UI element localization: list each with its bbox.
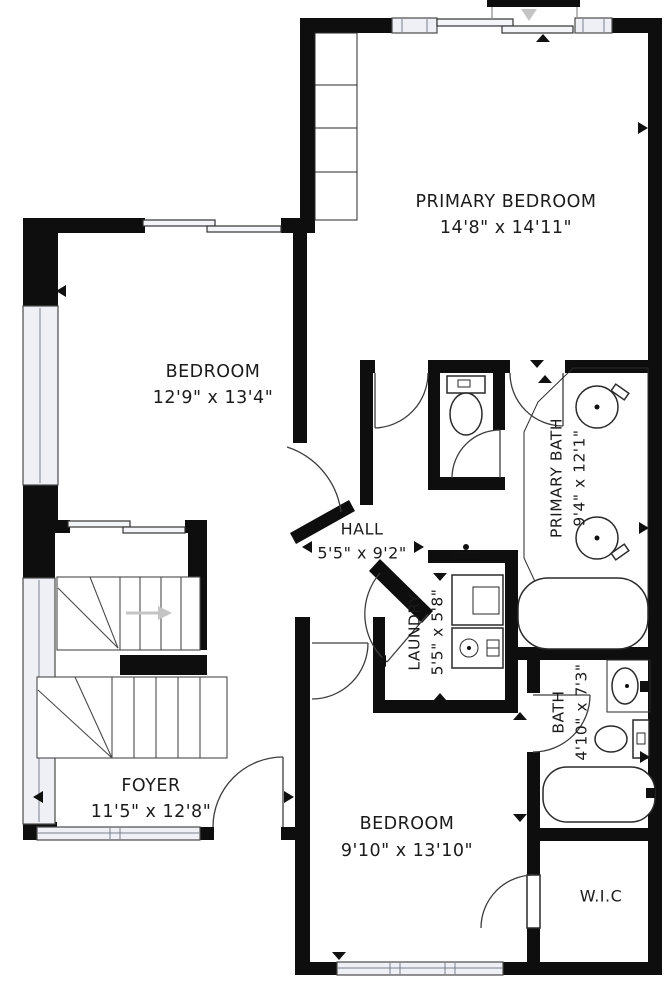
wall-segment [360,360,375,373]
room-label-hall: HALL [341,520,384,539]
room-label-primary-bath: PRIMARY BATH [548,418,566,538]
faucet-icon [640,681,648,692]
door-water-closet [452,430,500,478]
closet-shelves [315,33,357,220]
room-label-bath: BATH [550,690,568,733]
wall-segment [503,962,662,975]
tub-faucet-icon [646,788,655,798]
wall-segment [428,373,440,490]
washer-icon [452,628,503,668]
wall-segment [281,218,315,233]
sliding-glass-door [437,19,573,33]
floor-plan: PRIMARY BEDROOM 14'8" x 14'11" BEDROOM 1… [0,0,672,1000]
toilet-icon [447,376,485,435]
wall-segment [527,752,540,828]
room-label-wic: W.I.C [580,887,623,906]
room-dims-bedroom-bottom: 9'10" x 13'10" [341,841,473,861]
wall-segment [293,233,307,443]
door-foyer-entry [213,757,283,827]
room-dims-bedroom-left: 12'9" x 13'4" [153,388,274,408]
closet-sliding-doors [68,521,185,533]
wall-segment [23,525,55,580]
wall-segment [565,360,662,373]
room-dims-laundry: 5'5" x 5'8" [429,589,447,676]
room-label-primary-bedroom: PRIMARY BEDROOM [415,192,596,212]
window [575,18,612,33]
bathtub-icon [543,767,655,822]
wall-segment [295,962,337,975]
wall-segment [493,373,505,430]
stair-lower-run [37,677,227,758]
utility-sink-icon [452,575,503,625]
floor-plan-drawing: PRIMARY BEDROOM 14'8" x 14'11" BEDROOM 1… [0,0,672,1000]
wall-segment [300,18,315,233]
wall-segment [360,373,373,505]
wall-segment [527,660,540,693]
wall-segment [23,218,58,308]
door-wic [481,875,540,928]
wall-segment [505,550,518,713]
entry-wall-above [487,0,580,7]
wall-segment [428,360,510,373]
door-bedroom-bottom [312,643,368,699]
bathtub-icon [518,578,648,649]
room-dims-bath: 4'10" x 7'3" [573,663,591,760]
wall-segment [373,700,517,713]
wall-segment [120,655,207,675]
wall-segment [527,928,540,975]
door-primary-bedroom [375,373,428,428]
room-dims-primary-bedroom: 14'8" x 14'11" [440,218,572,238]
door-bedroom-left [287,447,341,512]
down-arrow-icon [521,9,537,21]
wall-segment [185,520,207,533]
room-label-foyer: FOYER [121,776,180,796]
wall-segment [23,520,70,533]
room-label-laundry: LAUNDRY [406,593,424,670]
sliding-window [143,220,281,232]
room-dims-hall: 5'5" x 9'2" [317,544,406,563]
room-label-bedroom-bottom: BEDROOM [360,814,455,834]
wall-segment [200,827,214,840]
wall-segment [295,617,310,975]
room-dims-primary-bath: 9'4" x 12'1" [571,429,589,526]
wall-segment [428,477,505,490]
window [392,18,437,33]
room-label-bedroom-left: BEDROOM [166,362,261,382]
wall-segment [23,483,58,525]
wall-segment [527,828,662,841]
bath-vanity [607,660,650,712]
room-dims-foyer: 11'5" x 12'8" [91,802,212,822]
